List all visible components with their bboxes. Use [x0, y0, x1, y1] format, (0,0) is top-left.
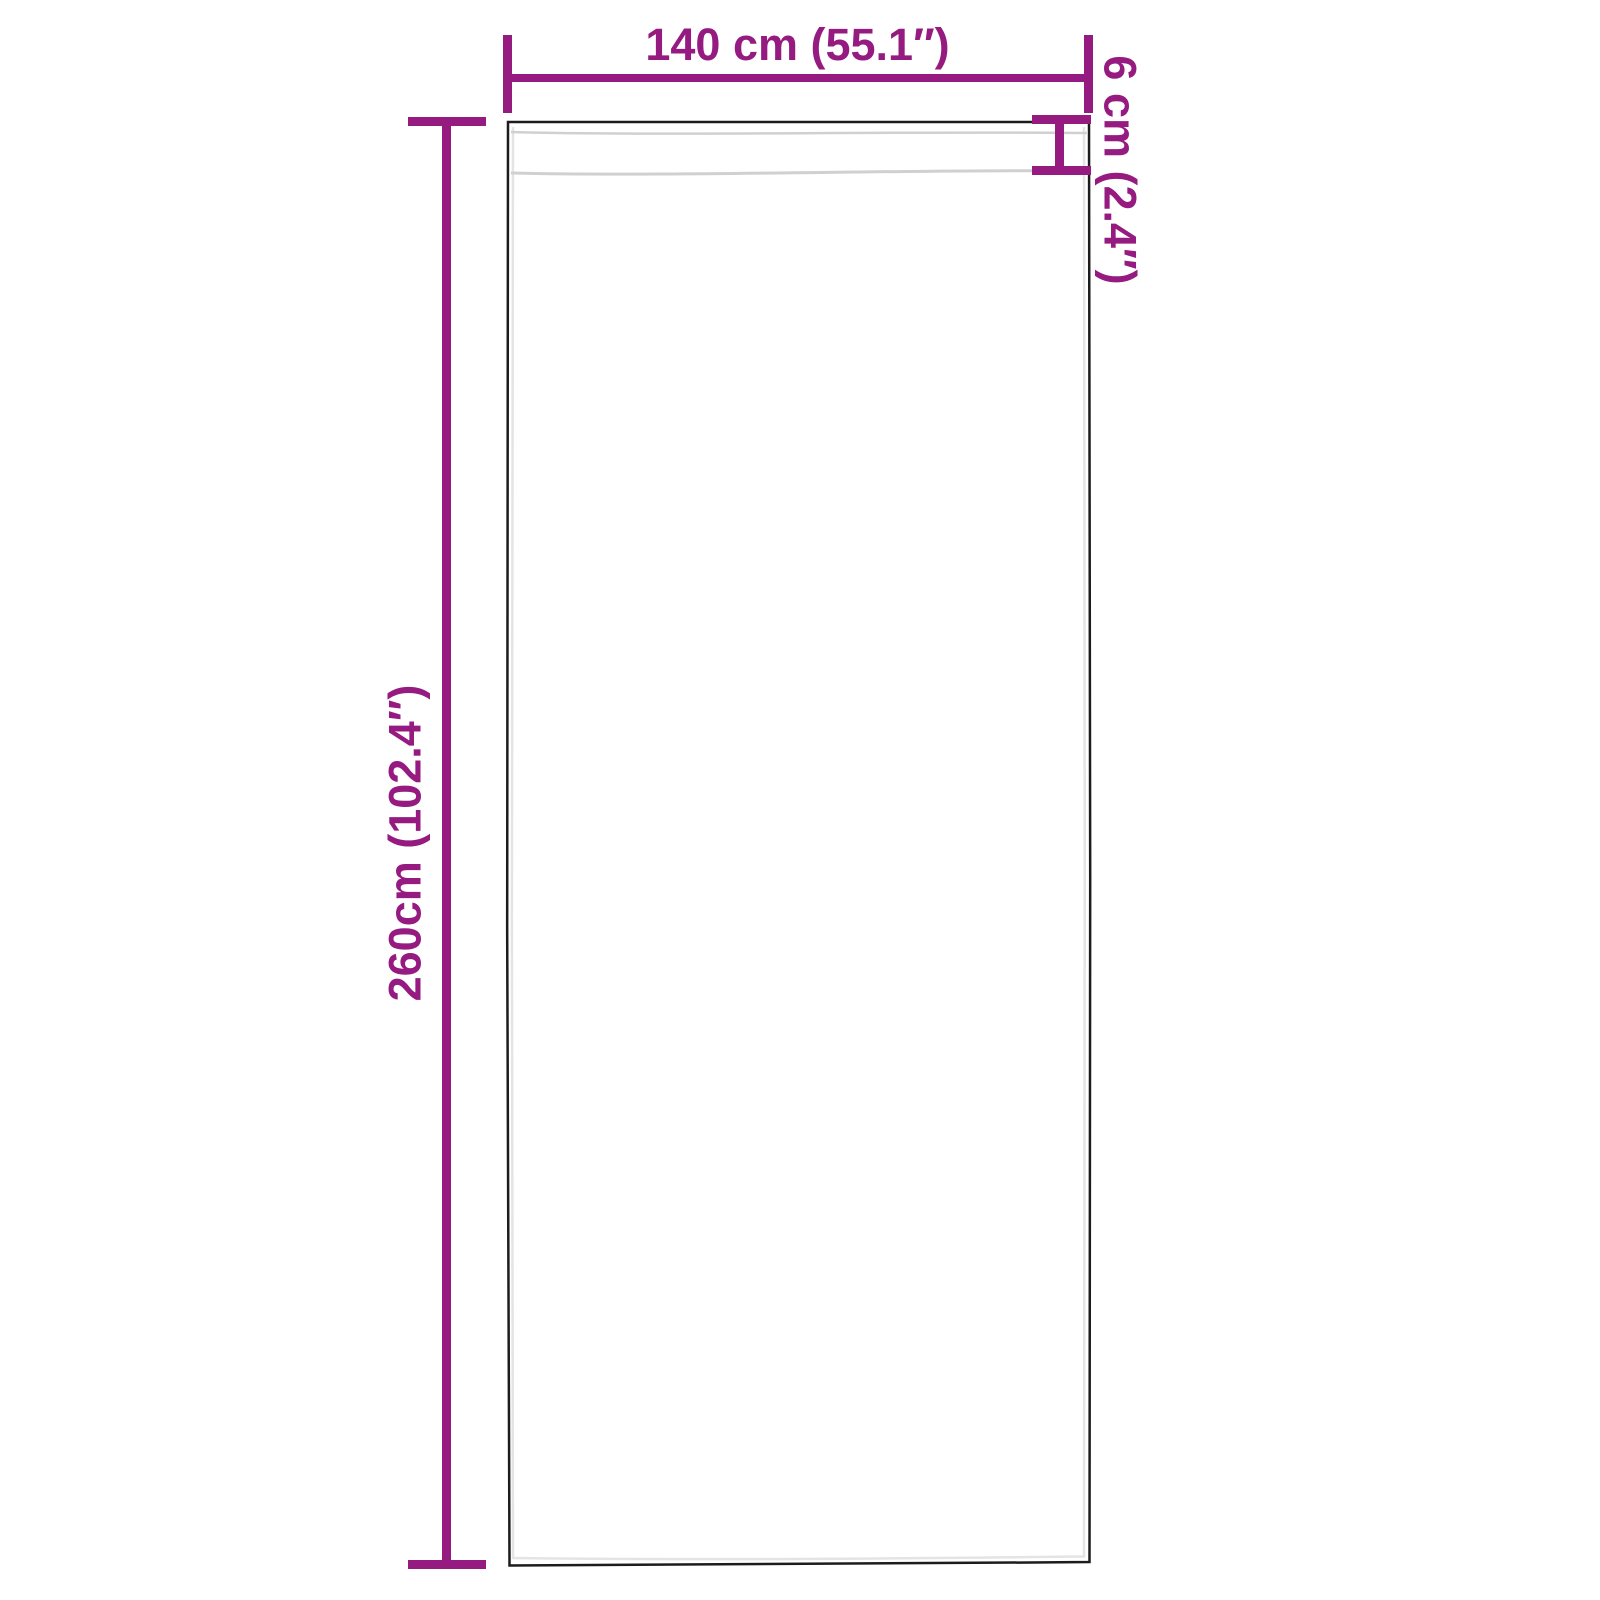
- height-dimension-bar: [442, 120, 451, 1569]
- height-dimension-label: 260cm (102.4″): [383, 685, 428, 1002]
- width-dimension-label: 140 cm (55.1″): [505, 22, 1090, 67]
- pocket-seam-line-top: [511, 132, 1088, 134]
- pocket-dimension-label: 6 cm (2.4″): [1098, 55, 1143, 284]
- pocket-dimension-bar: [1055, 117, 1064, 173]
- curtain-outline: [507, 121, 1090, 1566]
- width-dimension-bar: [505, 74, 1091, 82]
- dimension-diagram: 140 cm (55.1″) 260cm (102.4″) 6 cm (2.4″…: [0, 0, 1600, 1600]
- diagram-canvas: [0, 0, 1600, 1600]
- curtain-panel: [507, 121, 1090, 1566]
